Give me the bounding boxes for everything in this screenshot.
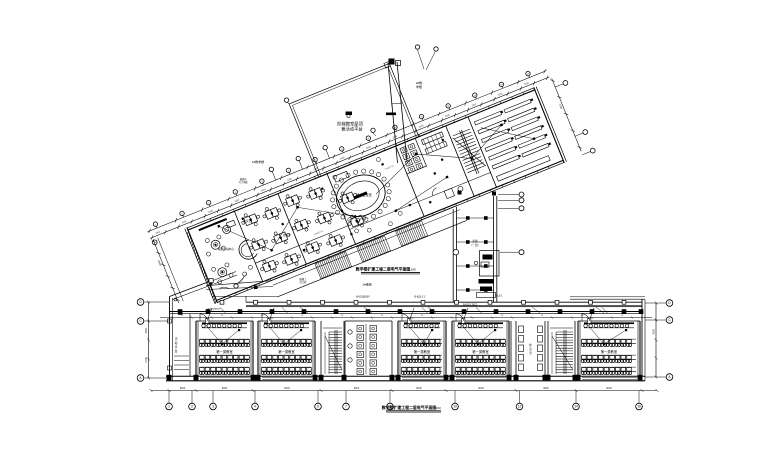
svg-text:B-6(2)3B18Y: B-6(2)3B18Y bbox=[356, 296, 370, 299]
svg-text:教学楼扩建工程二层电气平面图: 教学楼扩建工程二层电气平面图 bbox=[355, 267, 411, 272]
svg-text:1:100: 1:100 bbox=[408, 268, 416, 272]
svg-text:8000: 8000 bbox=[416, 387, 422, 390]
svg-text:第一类教室: 第一类教室 bbox=[278, 349, 295, 354]
svg-text:息: 息 bbox=[529, 347, 532, 351]
svg-text:7: 7 bbox=[345, 405, 347, 409]
svg-text:8000: 8000 bbox=[606, 387, 612, 390]
svg-text:14: 14 bbox=[574, 405, 578, 409]
svg-text:7500: 7500 bbox=[653, 329, 656, 335]
svg-text:8000: 8000 bbox=[180, 387, 186, 390]
svg-text:1#教学楼: 1#教学楼 bbox=[252, 159, 264, 164]
svg-text:第二会议室: 第二会议室 bbox=[356, 192, 371, 197]
svg-text:16: 16 bbox=[637, 405, 641, 409]
svg-text:1#连廊: 1#连廊 bbox=[362, 282, 371, 287]
svg-text:8000: 8000 bbox=[284, 387, 290, 390]
svg-text:10: 10 bbox=[453, 405, 457, 409]
svg-text:走廊: 走廊 bbox=[472, 239, 478, 243]
svg-text:会议室: 会议室 bbox=[243, 219, 251, 223]
svg-text:第一类教室: 第一类教室 bbox=[472, 349, 489, 354]
svg-text:休: 休 bbox=[529, 343, 532, 347]
svg-text:8000: 8000 bbox=[543, 387, 549, 390]
svg-text:4: 4 bbox=[254, 405, 256, 409]
svg-text:第一类教室: 第一类教室 bbox=[601, 349, 618, 354]
svg-text:室: 室 bbox=[529, 351, 532, 355]
svg-text:B-6(2)-2 Y: B-6(2)-2 Y bbox=[415, 295, 426, 298]
svg-text:AL2-1: AL2-1 bbox=[496, 295, 503, 298]
svg-text:兼活动平台: 兼活动平台 bbox=[341, 126, 362, 133]
svg-text:台: 台 bbox=[175, 349, 178, 353]
svg-text:12: 12 bbox=[518, 405, 522, 409]
svg-text:8000: 8000 bbox=[354, 387, 360, 390]
svg-text:学楼: 学楼 bbox=[416, 84, 422, 89]
svg-text:7500: 7500 bbox=[145, 328, 148, 334]
svg-text:第一类教室: 第一类教室 bbox=[216, 349, 233, 354]
svg-text:娱乐活动中心: 娱乐活动中心 bbox=[218, 247, 234, 251]
svg-text:B-6(2)3B18Y: B-6(2)3B18Y bbox=[208, 308, 221, 310]
svg-text:教学楼扩建工程二层电气平面图: 教学楼扩建工程二层电气平面图 bbox=[381, 405, 437, 410]
svg-text:1:100: 1:100 bbox=[433, 406, 441, 410]
svg-text:第一类教室: 第一类教室 bbox=[414, 349, 431, 354]
svg-text:1: 1 bbox=[168, 405, 170, 409]
svg-text:3: 3 bbox=[212, 405, 214, 409]
svg-text:2: 2 bbox=[191, 405, 193, 409]
svg-text:办公室: 办公室 bbox=[283, 233, 291, 237]
svg-text:6: 6 bbox=[317, 405, 319, 409]
svg-text:2100: 2100 bbox=[145, 357, 148, 363]
svg-text:8000: 8000 bbox=[478, 387, 484, 390]
svg-text:(一层): (一层) bbox=[472, 243, 479, 247]
svg-text:8000: 8000 bbox=[222, 387, 228, 390]
